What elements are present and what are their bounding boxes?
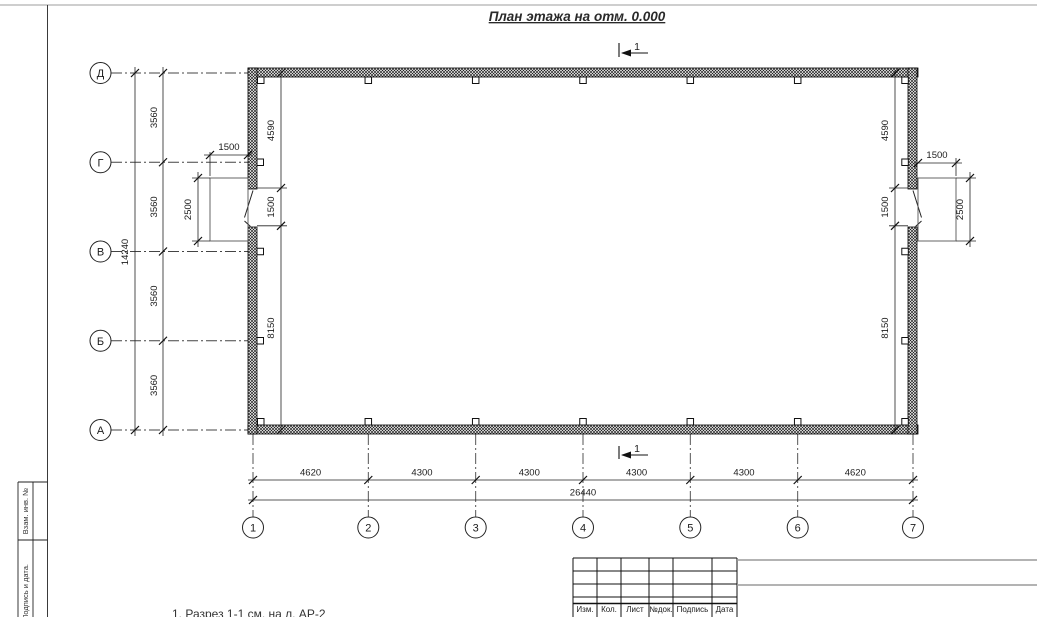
axis-bubble-a: А [90,420,111,441]
margin-label-vzam: Взам. инв. № [21,488,30,534]
dimension-labels: 14240 3560 3560 3560 3560 4620 4300 4300… [120,107,966,498]
titleblock-col: Подпись [677,605,709,614]
axis-label: Б [97,336,104,348]
axis-bubble-2: 2 [358,517,379,538]
wall-top [248,68,918,77]
axis-label: 2 [365,523,371,535]
dim-bottom-seg: 4300 [519,468,540,479]
axis-label: А [97,425,105,437]
axis-label: 6 [795,523,801,535]
wall-right-upper [908,68,917,189]
axis-label: Г [98,157,104,169]
page-frame [0,5,1037,617]
dim-bottom-total: 26440 [570,488,596,499]
axis-bubble-v: В [90,241,111,262]
dim-left-seg: 3560 [149,107,160,128]
dim-inner-left: 4590 [266,120,277,141]
door-leaf-right [913,191,922,227]
left-margin-stamp: Взам. инв. № Подпись и дата. [18,482,48,617]
section-mark-bottom: 1 [619,443,648,459]
section-marks: 1 1 [619,41,648,459]
dim-left-seg: 3560 [149,196,160,217]
titleblock: Изм. Кол. Лист №док. Подпись Дата [573,558,1037,617]
axis-bubble-6: 6 [787,517,808,538]
dim-inner-right: 4590 [880,120,891,141]
page-title: План этажа на отм. 0.000 [489,9,666,24]
drawing-sheet: Взам. инв. № Подпись и дата. План этажа … [0,0,1037,617]
titleblock-col: Дата [716,605,734,614]
porch-left [210,178,248,241]
dim-porch-left-width: 1500 [218,142,239,153]
titleblock-labels: Изм. Кол. Лист №док. Подпись Дата [576,605,733,614]
dim-bottom-seg: 4620 [845,468,866,479]
dim-porch-right-width: 1500 [926,150,947,161]
axis-label: В [97,247,104,259]
dimension-lines [135,67,976,500]
dim-bottom-seg: 4300 [733,468,754,479]
axis-label: 3 [473,523,479,535]
margin-label-podpis: Подпись и дата. [21,564,30,617]
dim-porch-left-depth: 2500 [183,199,194,220]
dim-left-total: 14240 [120,239,131,265]
floor-plan-svg: Взам. инв. № Подпись и дата. План этажа … [0,0,1037,617]
axis-bubble-4: 4 [573,517,594,538]
axis-bubble-g: Г [90,152,111,173]
axis-label: 7 [910,523,916,535]
dim-bottom-seg: 4300 [626,468,647,479]
porch-right [918,178,956,241]
titleblock-col: Лист [626,605,644,614]
wall-left-lower [248,227,257,434]
axis-label: 5 [687,523,693,535]
wall-left-upper [248,68,257,189]
dim-left-seg: 3560 [149,375,160,396]
axis-bubble-d: Д [90,63,111,84]
axis-label: 4 [580,523,586,535]
porches [210,178,956,241]
dim-inner-right: 8150 [880,317,891,338]
axis-bubble-1: 1 [243,517,264,538]
dim-porch-right-depth: 2500 [955,199,966,220]
dim-inner-left: 8150 [266,317,277,338]
wall-bottom [248,425,918,434]
axis-label: 1 [250,523,256,535]
axis-label: Д [97,68,105,80]
axis-circles-left: Д Г В Б А [90,63,111,441]
grid-axis-lines [111,73,913,517]
dimension-ticks [131,69,974,504]
dim-inner-right: 1500 [880,196,891,217]
dim-bottom-seg: 4300 [411,468,432,479]
titleblock-col: Кол. [601,605,617,614]
dim-left-seg: 3560 [149,286,160,307]
building-walls [248,68,918,434]
wall-right-lower [908,227,917,434]
dim-bottom-seg: 4620 [300,468,321,479]
door-leaf-left [245,191,254,227]
dim-inner-left: 1500 [266,196,277,217]
axis-circles-bottom: 1 2 3 4 5 6 7 [243,517,924,538]
note-text: 1. Разрез 1-1 см. на л. АР-2 [172,607,326,617]
axis-bubble-7: 7 [903,517,924,538]
titleblock-col: Изм. [576,605,593,614]
section-number: 1 [634,41,640,53]
titleblock-col: №док. [649,605,672,614]
section-number: 1 [634,443,640,455]
wall-pilasters [257,77,908,425]
axis-bubble-b: Б [90,330,111,351]
doors [245,191,922,227]
axis-bubble-5: 5 [680,517,701,538]
axis-bubble-3: 3 [465,517,486,538]
section-mark-top: 1 [619,41,648,57]
